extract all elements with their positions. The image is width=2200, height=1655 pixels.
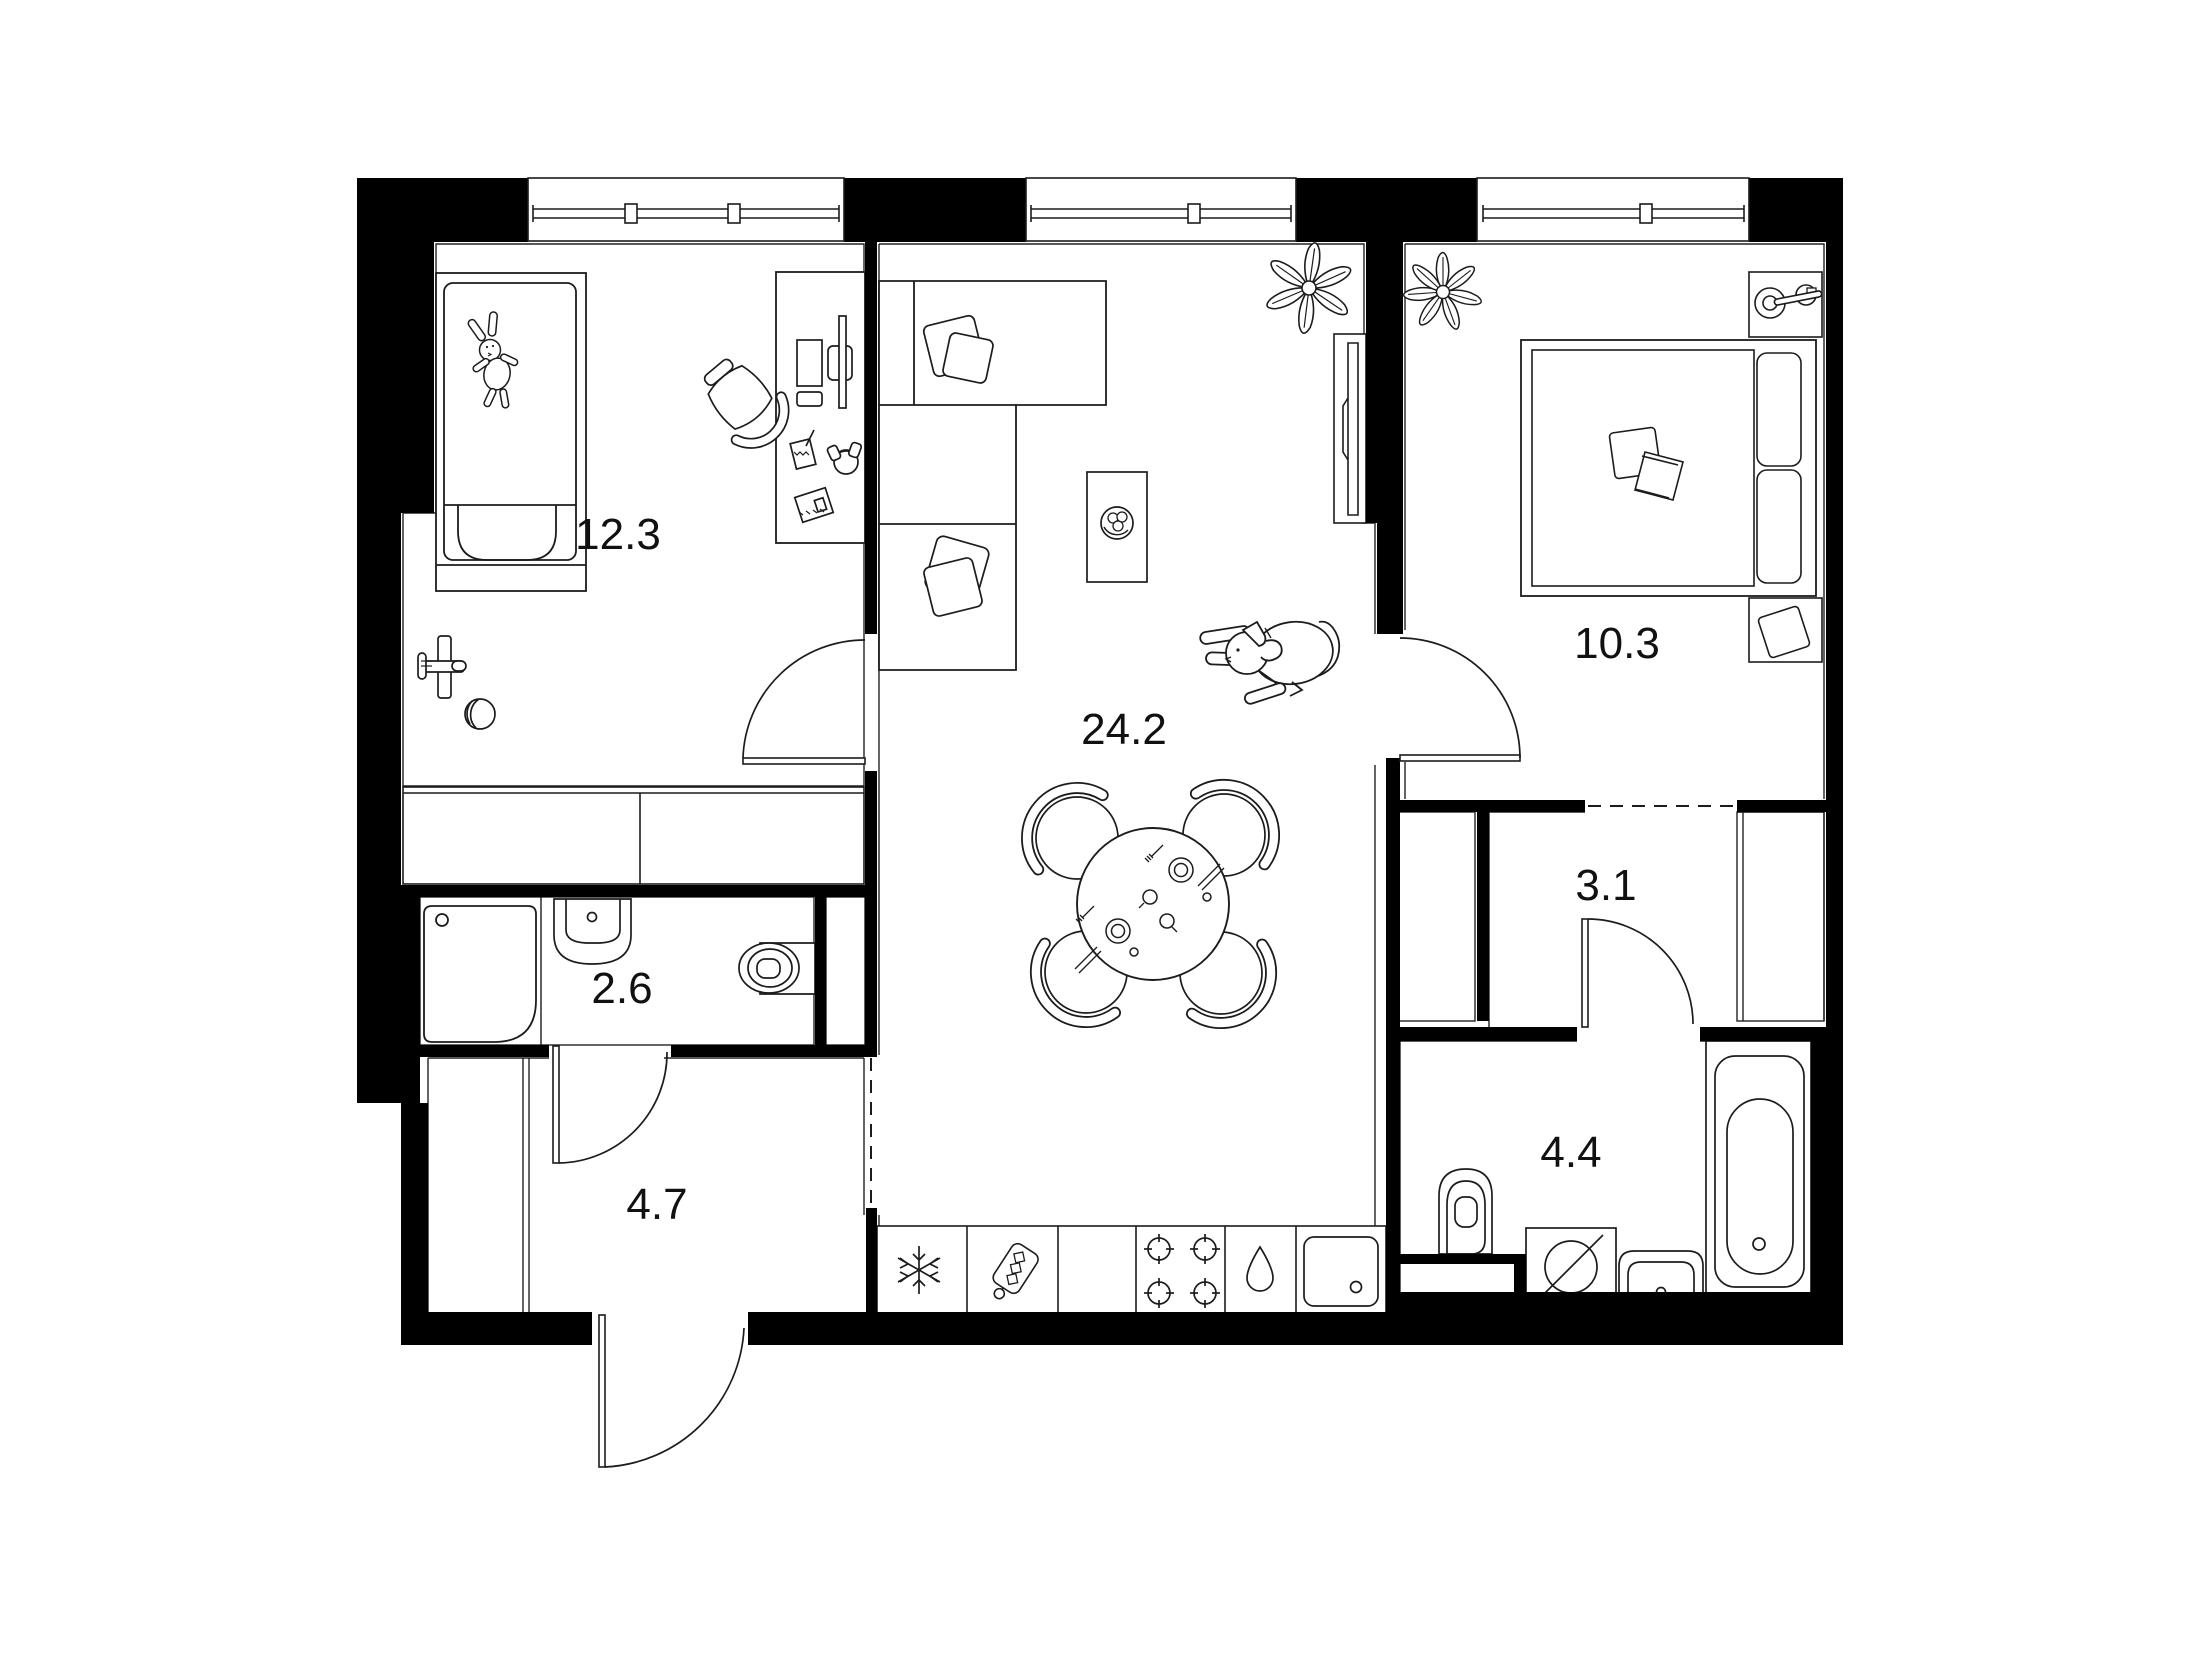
svg-text:24.2: 24.2 bbox=[1081, 705, 1167, 754]
svg-text:12.3: 12.3 bbox=[575, 510, 661, 559]
svg-text:4.4: 4.4 bbox=[1540, 1128, 1601, 1177]
svg-text:3.1: 3.1 bbox=[1575, 861, 1636, 910]
svg-text:10.3: 10.3 bbox=[1574, 619, 1660, 668]
svg-text:4.7: 4.7 bbox=[626, 1180, 687, 1229]
svg-text:2.6: 2.6 bbox=[591, 964, 652, 1013]
